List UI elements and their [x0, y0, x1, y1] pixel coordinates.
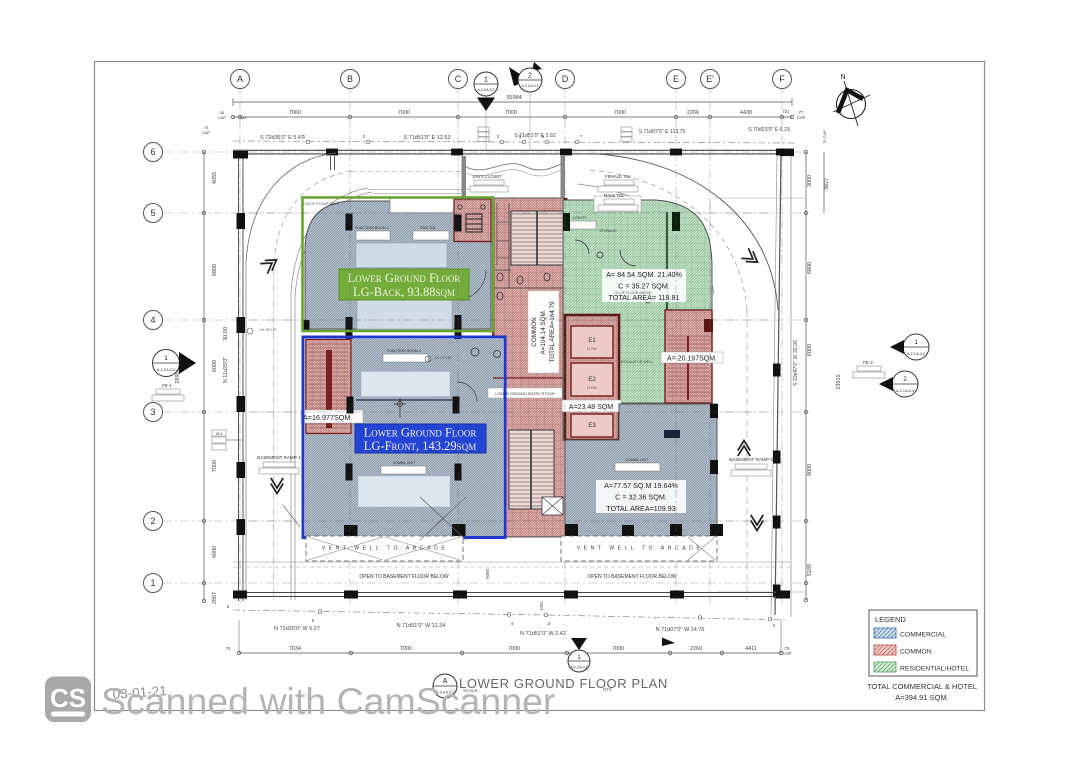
svg-text:6000: 6000 [807, 344, 813, 356]
svg-text:A=23.48 SQM: A=23.48 SQM [569, 404, 613, 411]
svg-text:LN OF UG: LN OF UG [435, 356, 452, 360]
svg-text:2: 2 [528, 73, 532, 80]
svg-text:23915: 23915 [836, 374, 842, 389]
svg-text:2: 2 [903, 376, 907, 383]
svg-text:A: A [237, 74, 243, 84]
svg-text:7000: 7000 [212, 460, 218, 472]
svg-text:FEMALE TOI.: FEMALE TOI. [605, 174, 631, 179]
svg-text:3827: 3827 [824, 178, 830, 190]
svg-text:COMML UNIT: COMML UNIT [626, 458, 649, 462]
svg-text:4411: 4411 [745, 646, 757, 652]
svg-text:6000: 6000 [212, 360, 218, 372]
svg-text:5: 5 [150, 208, 155, 218]
svg-text:30.00: 30.00 [223, 327, 229, 341]
svg-text:1: 1 [914, 339, 918, 346]
svg-text:4: 4 [150, 315, 155, 325]
svg-text:COMMON: COMMON [531, 317, 538, 347]
svg-text:7000: 7000 [505, 110, 517, 116]
svg-text:NTS: NTS [603, 687, 612, 692]
svg-text:C: C [455, 74, 462, 84]
svg-text:CAP: CAP [783, 651, 792, 656]
svg-text:N 71d51'0" W 12.34: N 71d51'0" W 12.34 [397, 623, 446, 629]
svg-text:OPEN TO BASEMENT FLOOR BELOW: OPEN TO BASEMENT FLOOR BELOW [587, 574, 676, 580]
svg-text:FUNCTION ROOM 3: FUNCTION ROOM 3 [387, 349, 421, 353]
svg-text:CAP: CAP [218, 115, 227, 120]
svg-text:6800: 6800 [807, 262, 813, 274]
svg-text:75 CAP: 75 CAP [822, 130, 827, 144]
svg-text:E2: E2 [588, 377, 596, 383]
svg-text:RESIDENTIAL/HOTEL: RESIDENTIAL/HOTEL [900, 666, 969, 673]
svg-text:1000: 1000 [539, 601, 544, 611]
svg-text:E1: E1 [588, 338, 596, 344]
svg-text:1: 1 [484, 77, 488, 84]
svg-text:7000: 7000 [508, 646, 520, 652]
svg-text:344: 344 [240, 115, 247, 120]
svg-text:4055: 4055 [212, 172, 218, 184]
svg-text:E: E [673, 74, 679, 84]
svg-text:C = 35.27 SQM.: C = 35.27 SQM. [618, 282, 670, 291]
svg-text:A=77.57 SQ.M 19.64%: A=77.57 SQ.M 19.64% [604, 481, 678, 490]
svg-text:D: D [562, 74, 569, 84]
svg-text:OPEN TO BASEMENT FLOOR BELOW: OPEN TO BASEMENT FLOOR BELOW [359, 574, 448, 580]
svg-text:A=104.14 SQM.: A=104.14 SQM. [540, 309, 547, 354]
svg-text:VENT WELL TO ARCADE: VENT WELL TO ARCADE [322, 546, 449, 552]
svg-text:BASEMENT RAMP-1: BASEMENT RAMP-1 [257, 455, 301, 460]
svg-text:N 11d25'0": N 11d25'0" [223, 357, 229, 383]
svg-text:E': E' [706, 74, 714, 84]
svg-text:W-4: W-4 [216, 432, 223, 436]
svg-text:N 71d07'0" W 14.76: N 71d07'0" W 14.76 [656, 627, 705, 633]
svg-text:LN OF FLOOR ABVE: LN OF FLOOR ABVE [305, 202, 340, 206]
svg-text:4000: 4000 [212, 546, 218, 558]
svg-text:1: 1 [150, 578, 155, 588]
svg-text:FE-1: FE-1 [162, 383, 172, 388]
svg-text:N: N [840, 74, 845, 81]
svg-text:LN OF FLOOR ABOVE: LN OF FLOOR ABOVE [614, 291, 652, 295]
svg-text:Lower Ground Floor: Lower Ground Floor [364, 426, 477, 440]
svg-text:3: 3 [150, 407, 155, 417]
svg-text:VENT WELL TO ARCADE: VENT WELL TO ARCADE [577, 546, 704, 552]
svg-text:TOTAL COMMERCIAL & HOTEL: TOTAL COMMERCIAL & HOTEL [867, 682, 977, 691]
svg-text:7000: 7000 [612, 646, 624, 652]
svg-text:N 71d51'0" W 2.42: N 71d51'0" W 2.42 [520, 631, 566, 637]
svg-text:CAP: CAP [797, 115, 806, 120]
svg-text:1: 1 [164, 355, 168, 362]
svg-text:LEGEND: LEGEND [875, 615, 906, 624]
svg-text:4438: 4438 [740, 110, 752, 116]
svg-text:5189: 5189 [807, 564, 813, 576]
svg-text:A-2.3 A-4.3: A-2.3 A-4.3 [896, 389, 914, 393]
svg-text:MALE TOI.: MALE TOI. [604, 193, 625, 198]
svg-text:A-2.3 A-3.2: A-2.3 A-3.2 [157, 368, 175, 372]
svg-text:CS: CS [50, 683, 86, 713]
svg-text:N 72d35'0" W 5.27: N 72d35'0" W 5.27 [274, 626, 320, 632]
svg-text:CAP: CAP [202, 130, 211, 135]
svg-text:5000: 5000 [485, 568, 490, 579]
svg-text:COMMERCIAL: COMMERCIAL [900, 632, 946, 639]
svg-text:ESCALATOR WELL: ESCALATOR WELL [621, 360, 653, 364]
svg-text:2867: 2867 [212, 592, 218, 604]
svg-text:6: 6 [150, 147, 155, 157]
svg-text:JAN'S CLOSET: JAN'S CLOSET [472, 174, 502, 179]
svg-text:3000: 3000 [807, 175, 813, 187]
svg-text:S 70d23'0" E 6.23: S 70d23'0" E 6.23 [748, 127, 790, 133]
svg-text:2: 2 [150, 516, 155, 526]
svg-text:TOTAL AREA=164.79: TOTAL AREA=164.79 [549, 301, 556, 362]
svg-text:Lower Ground Floor: Lower Ground Floor [348, 271, 461, 285]
svg-text:35984: 35984 [506, 95, 521, 101]
svg-text:12 PAX: 12 PAX [587, 386, 598, 390]
svg-text:A-2.3 A-4.2: A-2.3 A-4.2 [907, 352, 925, 356]
svg-text:Scanned with CamScanner: Scanned with CamScanner [101, 680, 555, 722]
svg-text:7000: 7000 [398, 110, 410, 116]
svg-text:2266: 2266 [687, 110, 699, 116]
svg-text:UTILITY: UTILITY [573, 216, 587, 220]
svg-text:75: 75 [226, 646, 231, 651]
svg-text:F: F [779, 74, 785, 84]
svg-text:7000: 7000 [400, 646, 412, 652]
svg-text:A-2.3 A-3.2: A-2.3 A-3.2 [571, 666, 588, 670]
svg-text:LG-Back, 93.88sqm: LG-Back, 93.88sqm [353, 285, 455, 299]
svg-text:A=394.91 SQM.: A=394.91 SQM. [895, 693, 949, 702]
svg-text:2260: 2260 [690, 646, 702, 652]
svg-text:A= 84.54 SQM. 21.40%: A= 84.54 SQM. 21.40% [606, 270, 682, 279]
svg-text:721: 721 [783, 109, 791, 114]
svg-text:FE-2: FE-2 [863, 360, 873, 365]
svg-text:A=16.977SQM.: A=16.977SQM. [303, 413, 352, 422]
svg-text:E3: E3 [588, 423, 596, 429]
svg-text:S 71d51'0" E 12.53: S 71d51'0" E 12.53 [403, 135, 450, 141]
svg-text:BASEMENT RAMP-2: BASEMENT RAMP-2 [729, 457, 773, 462]
svg-text:A-2.2 A-4.1: A-2.2 A-4.1 [522, 84, 539, 88]
svg-text:7000: 7000 [614, 110, 626, 116]
svg-text:7060: 7060 [289, 110, 301, 116]
svg-text:A= 20.197SQM.: A= 20.197SQM. [667, 356, 717, 363]
svg-text:LN OF UG: LN OF UG [260, 328, 277, 332]
svg-text:C = 32.36 SQM.: C = 32.36 SQM. [615, 493, 667, 502]
svg-text:TOTAL AREA=109.93: TOTAL AREA=109.93 [606, 504, 676, 513]
svg-text:B: B [347, 74, 353, 84]
svg-text:7034: 7034 [289, 646, 301, 652]
svg-text:8000: 8000 [807, 464, 813, 476]
svg-text:S 19d47'0" W 30.00: S 19d47'0" W 30.00 [793, 340, 799, 386]
svg-text:A-2.3 A-3.2: A-2.3 A-3.2 [478, 88, 495, 92]
svg-text:FUNCTION ROOM 1: FUNCTION ROOM 1 [355, 226, 389, 230]
svg-text:COMMON: COMMON [900, 649, 932, 656]
svg-text:S 71d07'0" E 113.75: S 71d07'0" E 113.75 [639, 129, 686, 135]
svg-text:STORAGE: STORAGE [599, 229, 617, 233]
svg-text:12 PAX: 12 PAX [587, 347, 598, 351]
svg-text:COMML UNIT: COMML UNIT [393, 461, 416, 465]
svg-text:LG-Front, 143.29sqm: LG-Front, 143.29sqm [364, 439, 476, 453]
svg-text:S 72d35'0" E 5.47: S 72d35'0" E 5.47 [260, 135, 304, 141]
svg-text:FWD TOL: FWD TOL [420, 226, 436, 230]
svg-text:6800: 6800 [212, 264, 218, 276]
